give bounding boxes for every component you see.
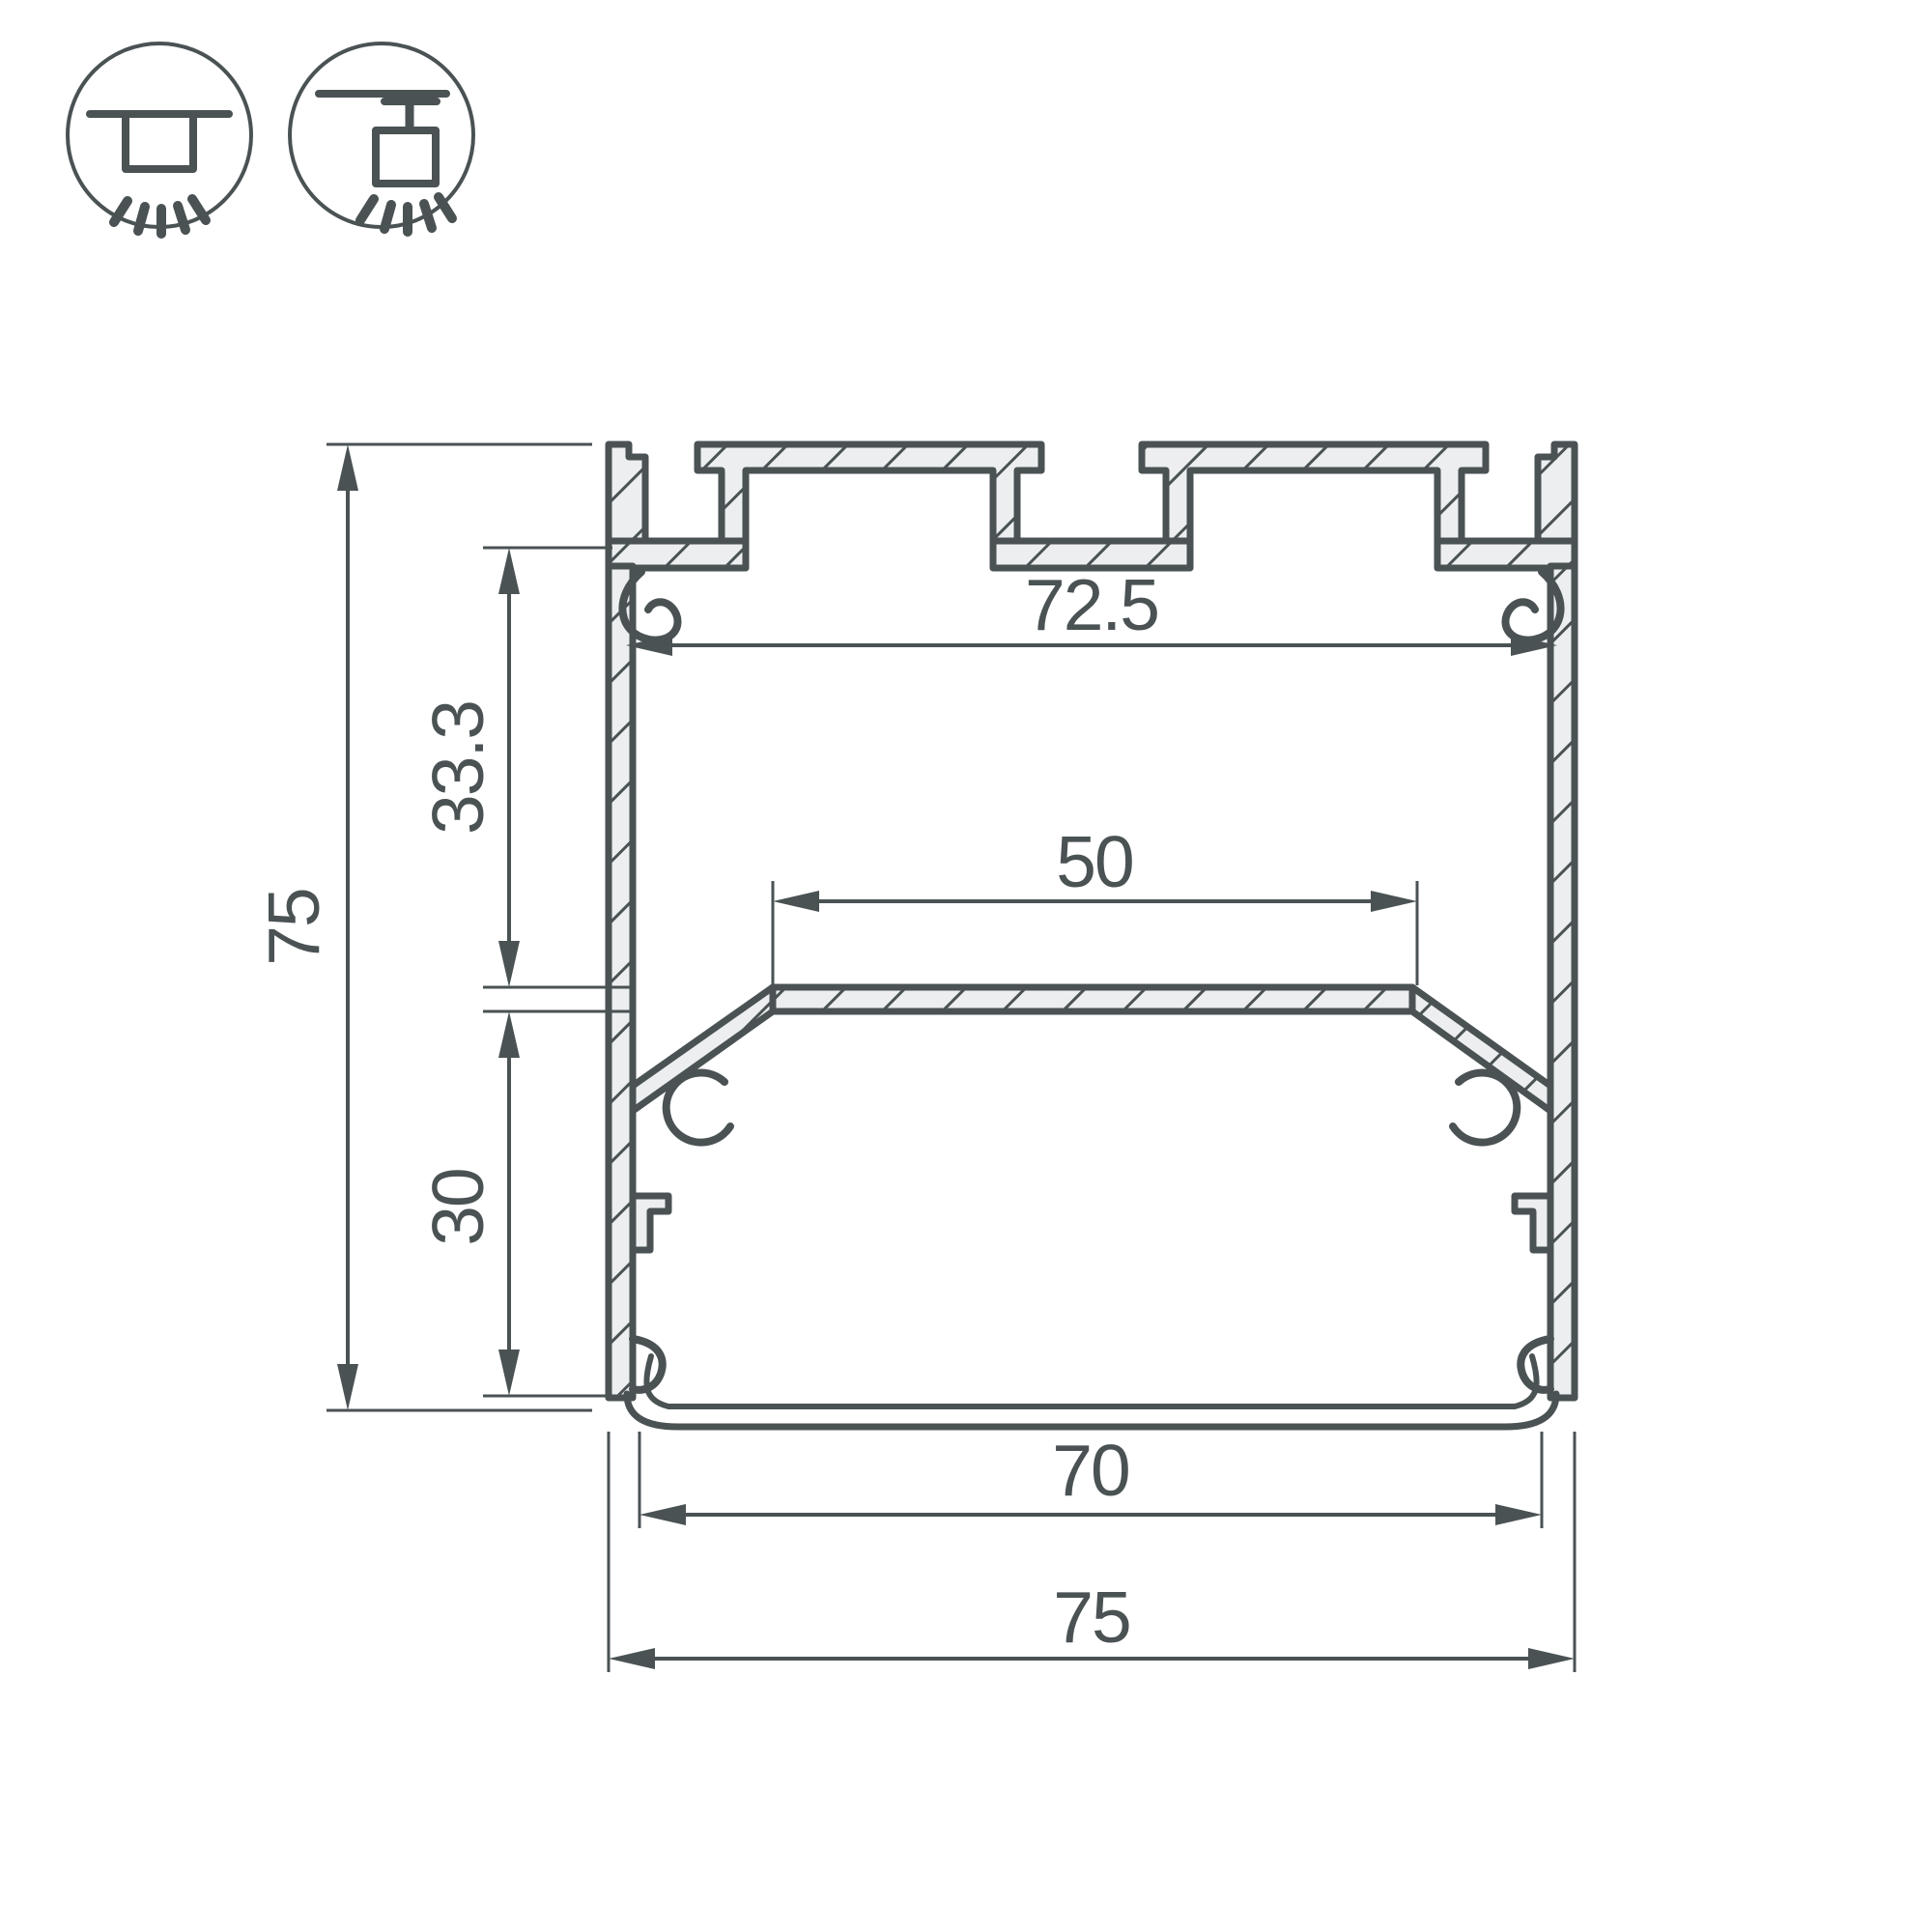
profile-cross-section-drawing: 72.5 50 33.3 75 30 70 75 (0, 0, 1932, 1932)
dimension-graphics (327, 444, 1575, 1672)
dim-total-height (327, 444, 592, 1410)
top-bar-right (1142, 444, 1486, 541)
pendant-mount-icon (290, 43, 473, 232)
label-inner-width-top: 72.5 (1025, 564, 1158, 645)
shelf-right-wing (1412, 987, 1550, 1111)
shelf-left-wing (633, 987, 773, 1111)
top-right-upstand (1538, 444, 1575, 541)
label-total-height: 75 (253, 889, 334, 965)
mount-icons (68, 43, 473, 234)
right-wall (1550, 566, 1575, 1398)
cover-inner-edge (646, 1356, 1536, 1406)
left-wall (609, 566, 633, 1398)
top-left-upstand (609, 444, 645, 541)
left-internal-details (622, 572, 730, 1390)
label-lower-section-height: 30 (417, 1169, 498, 1245)
technical-drawing-page: 72.5 50 33.3 75 30 70 75 (0, 0, 1932, 1932)
shelf-clip (667, 1073, 730, 1143)
cover-outer-edge (627, 1394, 1556, 1427)
wall-clip (633, 1196, 668, 1250)
label-inner-width-bottom: 70 (1052, 1430, 1128, 1511)
label-led-shelf-width: 50 (1056, 821, 1132, 902)
led-shelf (773, 987, 1412, 1011)
label-upper-section-height: 33.3 (417, 701, 498, 835)
diffuser-cover (627, 1356, 1556, 1427)
light-rays (114, 199, 206, 234)
label-total-width: 75 (1053, 1577, 1129, 1658)
surface-mount-icon (68, 43, 251, 234)
dimension-labels: 72.5 50 33.3 75 30 70 75 (253, 564, 1158, 1658)
right-internal-details (1453, 572, 1561, 1390)
top-bar-left (697, 444, 1041, 541)
